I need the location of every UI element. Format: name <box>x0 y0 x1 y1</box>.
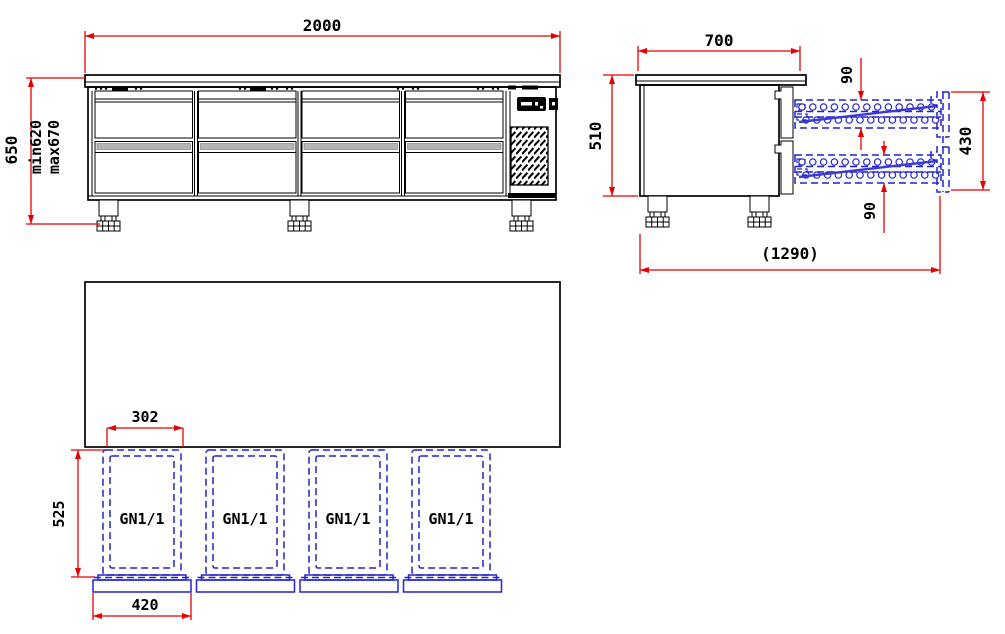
side-body <box>640 85 779 196</box>
drawer-column <box>95 91 193 193</box>
drawer-front-plan <box>300 575 398 592</box>
dim-side-depth: 700 <box>638 31 800 71</box>
dim-drawer-zone: 430 <box>951 92 990 190</box>
front-legs <box>97 200 533 231</box>
counter-top <box>85 75 560 87</box>
ventilation-grille <box>511 127 548 185</box>
dim-pan-depth: 525 <box>50 450 107 577</box>
front-view: 2000 650 min620 max670 <box>2 16 560 231</box>
drawer-front-plan <box>404 575 502 592</box>
gn-pan: GN1/1 <box>206 450 284 575</box>
dim-pan-width: 302 <box>107 408 183 447</box>
gn-pan-label: GN1/1 <box>325 510 370 528</box>
dim-text-body-height: 510 <box>586 122 605 151</box>
gn-pan-label: GN1/1 <box>428 510 473 528</box>
gn-pan: GN1/1 <box>103 450 181 575</box>
dim-front-height: 650 min620 max670 <box>2 78 100 224</box>
drawer-front-plan <box>197 575 295 592</box>
dim-text-extended-depth: (1290) <box>761 244 819 263</box>
technical-drawing-svg: 2000 650 min620 max670 <box>0 0 1005 634</box>
drawer-column <box>199 91 297 193</box>
label-height-min: min620 <box>27 120 45 174</box>
gn-pan-label: GN1/1 <box>119 510 164 528</box>
dim-text-width: 2000 <box>303 16 342 35</box>
drawer-column <box>406 91 504 193</box>
dim-extended-depth: (1290) <box>640 196 940 274</box>
plan-view: 302 525 GN1/1 GN1/1 GN1/1 GN1/1 <box>50 282 560 620</box>
compressor-section <box>506 91 558 198</box>
controller-display <box>517 97 558 111</box>
dim-text-pan-depth: 525 <box>50 500 68 527</box>
side-view: 700 510 90 90 430 (1290) <box>586 31 990 274</box>
telescopic-slide-lower <box>795 155 941 183</box>
gn-pan: GN1/1 <box>309 450 387 575</box>
compressor-base-bar <box>508 193 556 198</box>
drawer-column <box>302 91 400 193</box>
dim-front-width: 2000 <box>85 16 560 73</box>
side-legs <box>646 196 771 227</box>
dim-text-lower-slide: 90 <box>861 202 879 220</box>
label-height-max: max670 <box>45 120 63 174</box>
side-drawer-fronts <box>775 87 793 194</box>
dim-text-front-width: 420 <box>131 596 158 614</box>
gn-pan: GN1/1 <box>412 450 490 575</box>
dim-text-depth: 700 <box>705 31 734 50</box>
dim-text-height: 650 <box>2 136 21 165</box>
dim-front-width-plan: 420 <box>93 593 191 620</box>
drawer-front-plan <box>93 575 191 592</box>
drawing-sheet: 2000 650 min620 max670 <box>0 0 1005 634</box>
dim-text-drawer-zone: 430 <box>956 127 975 156</box>
dim-text-upper-slide: 90 <box>838 66 856 84</box>
side-counter-top <box>636 75 806 85</box>
gn-pan-label: GN1/1 <box>222 510 267 528</box>
drawer-grid <box>88 91 556 196</box>
telescopic-slide-upper <box>795 100 941 128</box>
dim-side-body-height: 510 <box>586 75 638 196</box>
dim-text-pan-width: 302 <box>131 408 158 426</box>
